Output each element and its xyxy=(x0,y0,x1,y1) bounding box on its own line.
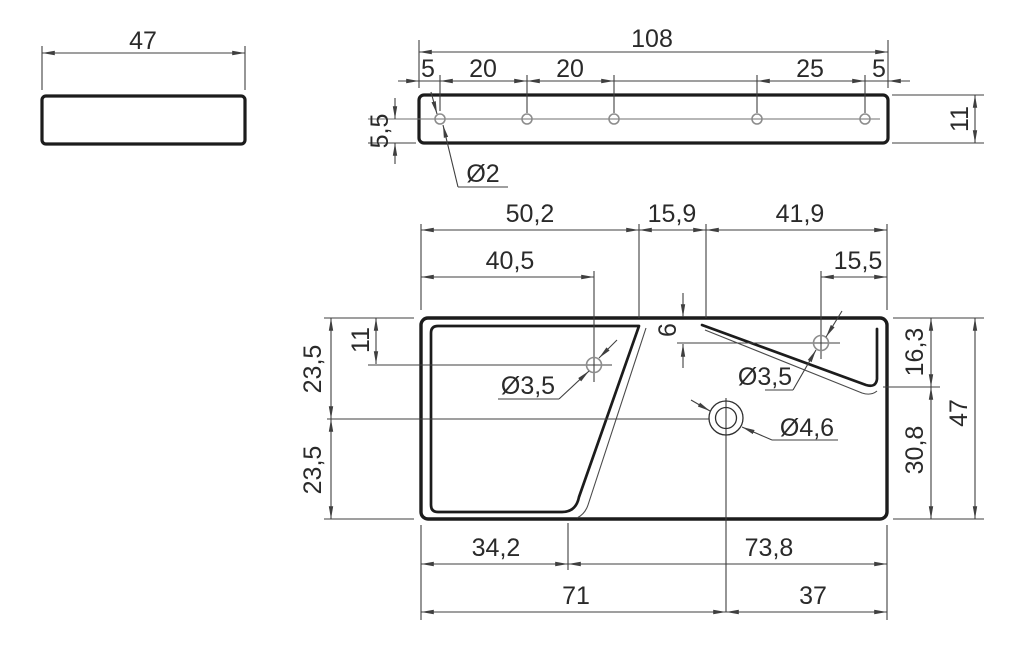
leader-line xyxy=(443,125,458,187)
left-pocket-chamfer-line xyxy=(577,328,646,518)
dim-label-chain-1: 5 xyxy=(421,55,435,83)
dim-front-hole-positions: 40,5 15,5 xyxy=(421,247,887,277)
dim-label-chain-2: 20 xyxy=(469,55,497,83)
dim-label-chain-3: 20 xyxy=(556,55,584,83)
dim-label-right-upper: 16,3 xyxy=(901,328,929,377)
dim-front-right-column: 16,3 30,8 47 xyxy=(883,318,984,519)
end-view: 47 xyxy=(42,27,245,144)
dim-front-bottom-rows: 34,2 73,8 71 37 xyxy=(421,523,887,620)
leader-line xyxy=(793,350,816,390)
dim-label-left-upper: 23,5 xyxy=(299,345,327,394)
dim-label-bottom-1: 34,2 xyxy=(472,534,521,562)
dim-label-bottom-3: 71 xyxy=(562,582,590,610)
dim-label-thickness: 11 xyxy=(946,106,974,132)
leader-line xyxy=(599,340,617,358)
center-counterbore-hole xyxy=(327,398,743,612)
dim-label-top-3: 41,9 xyxy=(776,200,825,228)
dim-label-end-width: 47 xyxy=(129,27,157,55)
dim-label-center-hole-dia: Ø4,6 xyxy=(780,414,834,442)
dim-label-top-2: 15,9 xyxy=(648,200,697,228)
dim-label-right-hole-dia: Ø3,5 xyxy=(738,363,792,391)
dim-side-hole-chain: 5 20 20 25 5 xyxy=(398,55,910,113)
dim-label-slot-offset: 6 xyxy=(654,323,682,337)
dim-label-bottom-2: 73,8 xyxy=(745,534,794,562)
dim-label-bottom-4: 37 xyxy=(799,582,827,610)
technical-drawing-canvas: 47 108 xyxy=(0,0,1024,659)
dim-label-side-length: 108 xyxy=(631,25,673,53)
dim-label-right-height: 47 xyxy=(945,399,973,427)
end-view-outline xyxy=(42,96,245,144)
leader-line xyxy=(826,311,842,337)
leader-line xyxy=(559,371,589,399)
leader-hole-diameter: Ø2 xyxy=(431,92,508,188)
leader-line xyxy=(742,427,772,440)
dim-label-top-1: 50,2 xyxy=(506,200,555,228)
side-view: 108 5 20 20 25 5 5,5 xyxy=(366,25,984,188)
dim-side-hole-offset: 5,5 xyxy=(366,98,416,164)
dim-label-hole-diameter: Ø2 xyxy=(466,160,499,188)
dim-label-left-hole-dia: Ø3,5 xyxy=(501,372,555,400)
dim-label-chain-4: 25 xyxy=(796,55,824,83)
dim-label-hole-x-left: 40,5 xyxy=(486,247,535,275)
dim-label-left-lower: 23,5 xyxy=(299,446,327,495)
dim-label-right-lower: 30,8 xyxy=(901,426,929,475)
dim-side-thickness: 11 xyxy=(892,95,984,143)
leader-line xyxy=(691,400,710,411)
dim-label-hole-x-right: 15,5 xyxy=(834,247,883,275)
dim-label-hole-offset: 5,5 xyxy=(366,114,394,149)
drawing-sheet: 47 108 xyxy=(0,0,1024,659)
dim-label-chain-5: 5 xyxy=(872,55,886,83)
dim-front-slot-offset: 6 xyxy=(654,293,683,368)
dim-end-width: 47 xyxy=(42,27,245,90)
front-view: 50,2 15,9 41,9 40,5 15,5 23,5 23,5 11 xyxy=(299,200,984,620)
dim-label-left-hole-y: 11 xyxy=(347,327,375,353)
